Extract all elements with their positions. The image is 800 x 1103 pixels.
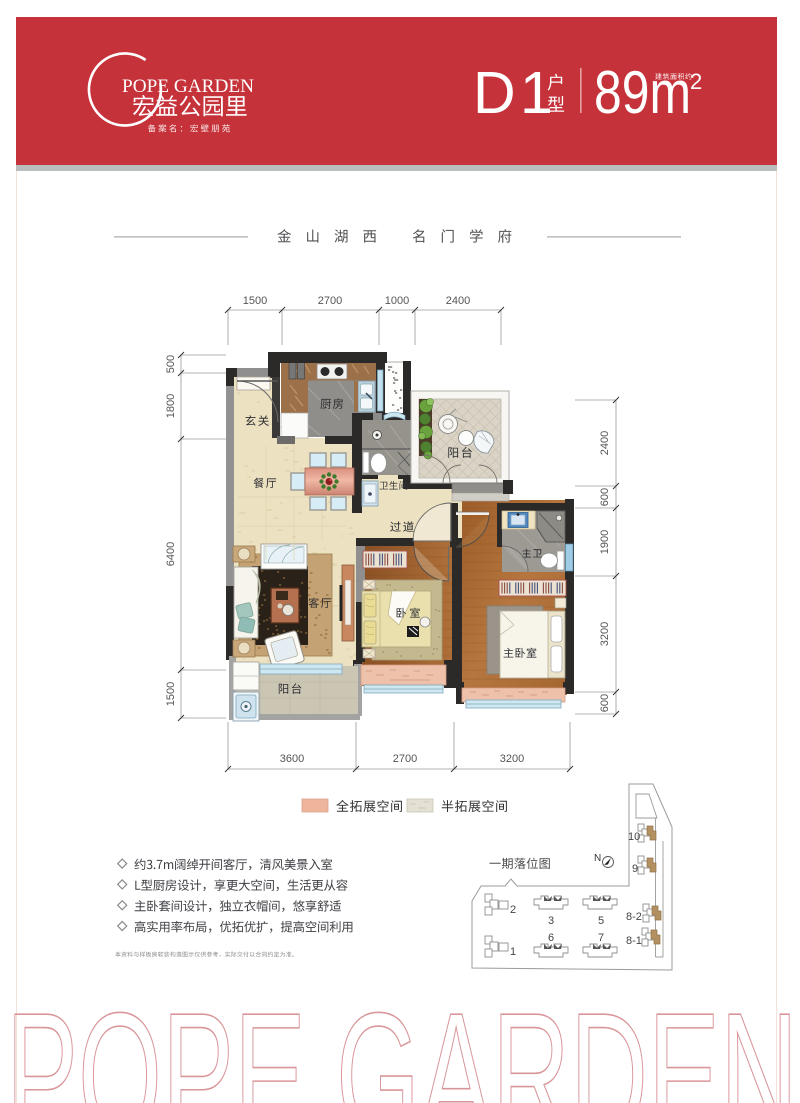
- svg-text:2700: 2700: [393, 753, 417, 765]
- svg-text:5: 5: [598, 915, 604, 927]
- svg-text:2: 2: [690, 69, 702, 94]
- svg-text:1800: 1800: [165, 394, 177, 418]
- svg-text:500: 500: [165, 355, 177, 373]
- svg-text:1900: 1900: [599, 530, 611, 554]
- svg-text:3200: 3200: [500, 753, 524, 765]
- svg-text:6: 6: [548, 932, 554, 944]
- svg-text:2700: 2700: [318, 295, 342, 307]
- svg-text:7: 7: [598, 932, 604, 944]
- svg-text:2: 2: [510, 904, 516, 916]
- svg-text:600: 600: [599, 694, 611, 712]
- svg-text:8-1: 8-1: [626, 935, 642, 947]
- svg-text:1: 1: [520, 60, 553, 126]
- svg-text:10: 10: [628, 831, 640, 843]
- svg-text:1: 1: [510, 946, 516, 958]
- svg-text:3: 3: [548, 915, 554, 927]
- svg-text:D: D: [473, 60, 516, 126]
- svg-text:6400: 6400: [165, 542, 177, 566]
- svg-text:9: 9: [632, 863, 638, 875]
- svg-text:2400: 2400: [446, 295, 470, 307]
- svg-text:POPE GARDEN: POPE GARDEN: [6, 976, 798, 1103]
- svg-text:N: N: [594, 853, 601, 864]
- svg-text:3600: 3600: [280, 753, 304, 765]
- svg-text:POPE GARDEN: POPE GARDEN: [122, 76, 254, 97]
- svg-text:1500: 1500: [165, 682, 177, 706]
- svg-text:8-2: 8-2: [626, 911, 642, 923]
- svg-text:89m: 89m: [594, 59, 691, 126]
- svg-text:1000: 1000: [385, 295, 409, 307]
- svg-text:3200: 3200: [599, 622, 611, 646]
- svg-text:2400: 2400: [599, 431, 611, 455]
- svg-text:600: 600: [599, 488, 611, 506]
- svg-text:1500: 1500: [243, 295, 267, 307]
